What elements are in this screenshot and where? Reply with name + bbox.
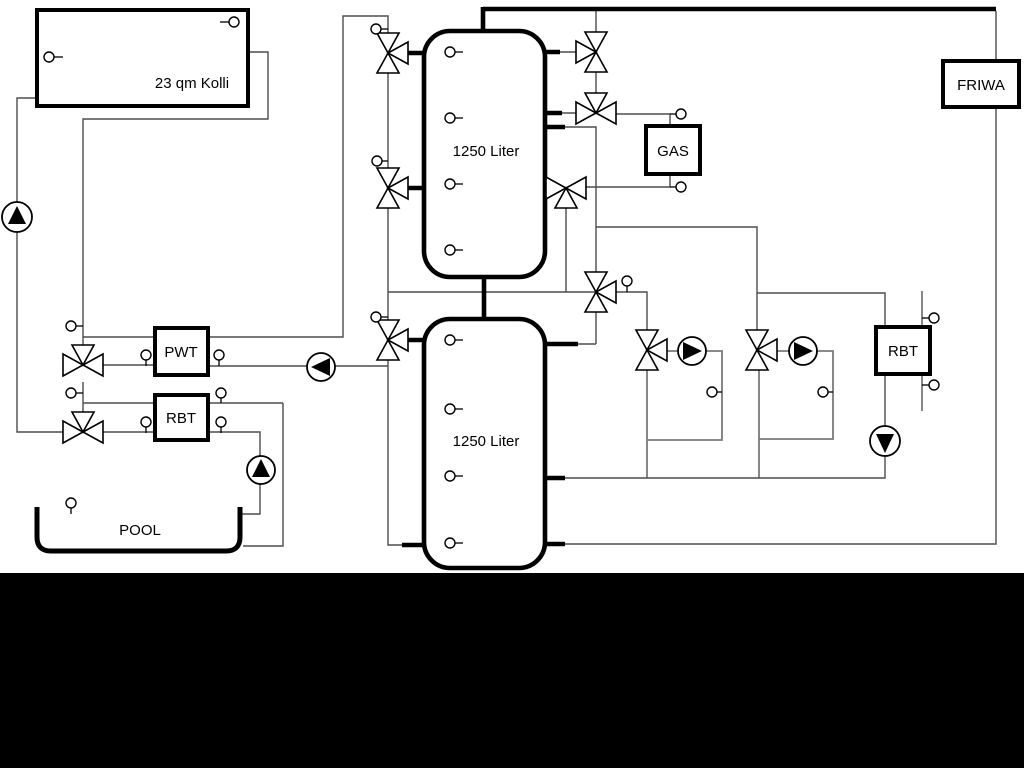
gas-label: GAS bbox=[657, 143, 689, 160]
pump-rbt-right bbox=[870, 426, 900, 456]
tank2-label: 1250 Liter bbox=[453, 433, 520, 450]
collector-label: 23 qm Kolli bbox=[155, 75, 229, 92]
pump-pool bbox=[247, 456, 275, 484]
pump-pwt-secondary bbox=[307, 353, 335, 381]
pump-solar bbox=[2, 202, 32, 232]
pwt-label: PWT bbox=[164, 344, 197, 361]
pump-circuit-2 bbox=[789, 337, 817, 365]
rbt-left-label: RBT bbox=[166, 410, 196, 427]
pump-circuit-1 bbox=[678, 337, 706, 365]
hydraulic-schematic: 23 qm Kolli 1250 Liter 1250 Liter GAS FR… bbox=[0, 0, 1024, 768]
footer-black-bar bbox=[0, 573, 1024, 768]
friwa-label: FRIWA bbox=[957, 77, 1005, 94]
pool-label: POOL bbox=[119, 522, 161, 539]
rbt-right-label: RBT bbox=[888, 343, 918, 360]
tank1-label: 1250 Liter bbox=[453, 143, 520, 160]
